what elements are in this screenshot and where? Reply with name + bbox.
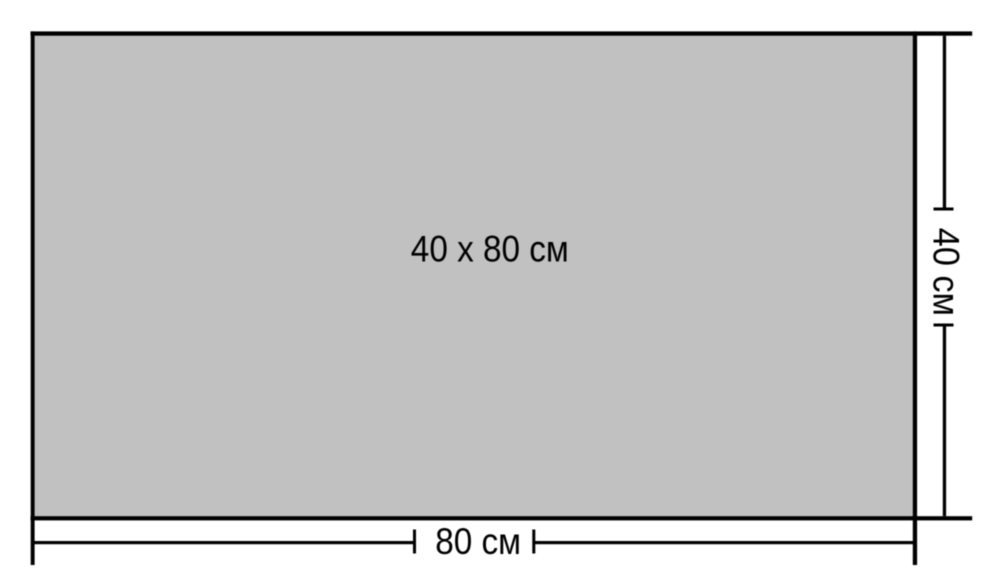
svg-text:40 см: 40 см xyxy=(925,228,967,316)
svg-text:80 см: 80 см xyxy=(435,521,521,562)
svg-text:40 x 80 см: 40 x 80 см xyxy=(411,229,569,270)
